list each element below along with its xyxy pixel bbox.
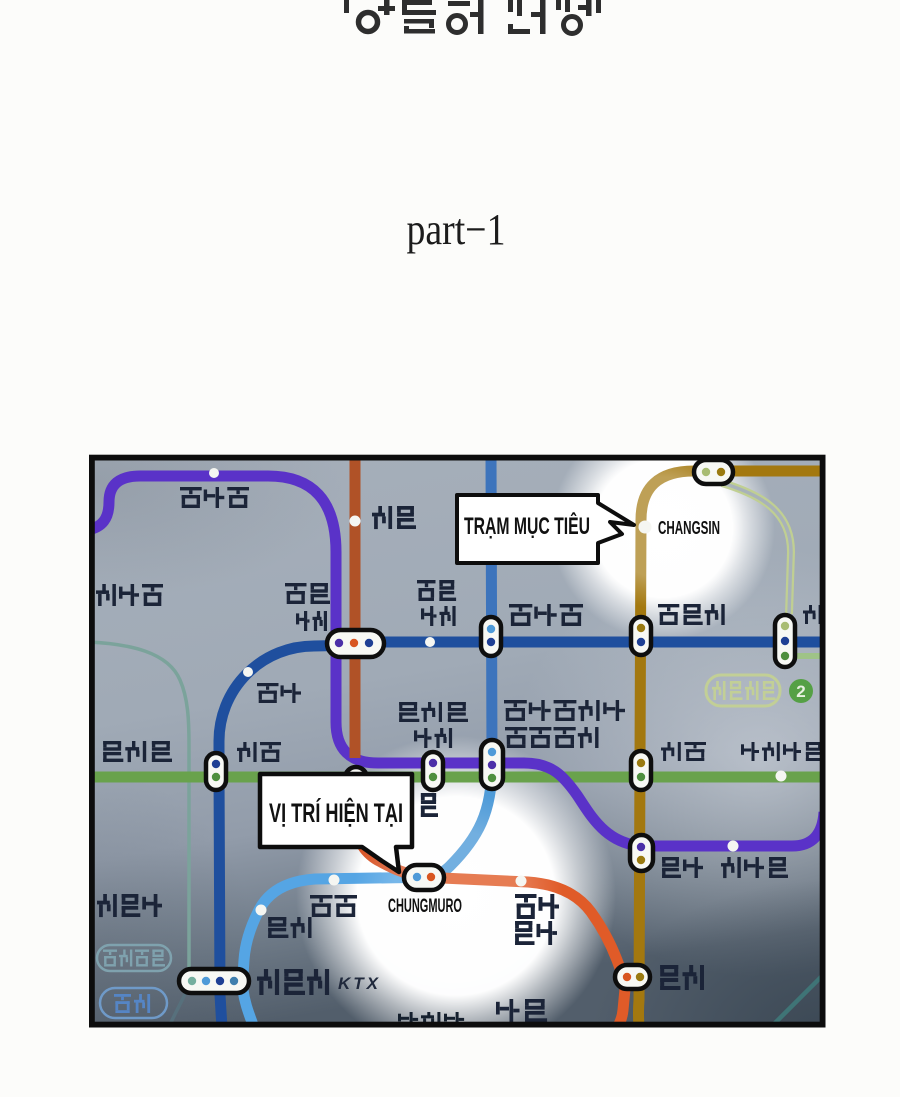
svg-text:TRẠM MỤC TIÊU: TRẠM MỤC TIÊU — [464, 512, 590, 540]
svg-text:VỊ TRÍ HIỆN TẠI: VỊ TRÍ HIỆN TẠI — [269, 797, 403, 828]
svg-text:KTX: KTX — [338, 974, 380, 993]
svg-text:part−1: part−1 — [407, 205, 506, 254]
svg-text:CHUNGMURO: CHUNGMURO — [388, 896, 462, 917]
svg-text:CHANGSIN: CHANGSIN — [658, 518, 720, 538]
svg-text:2: 2 — [796, 682, 805, 701]
